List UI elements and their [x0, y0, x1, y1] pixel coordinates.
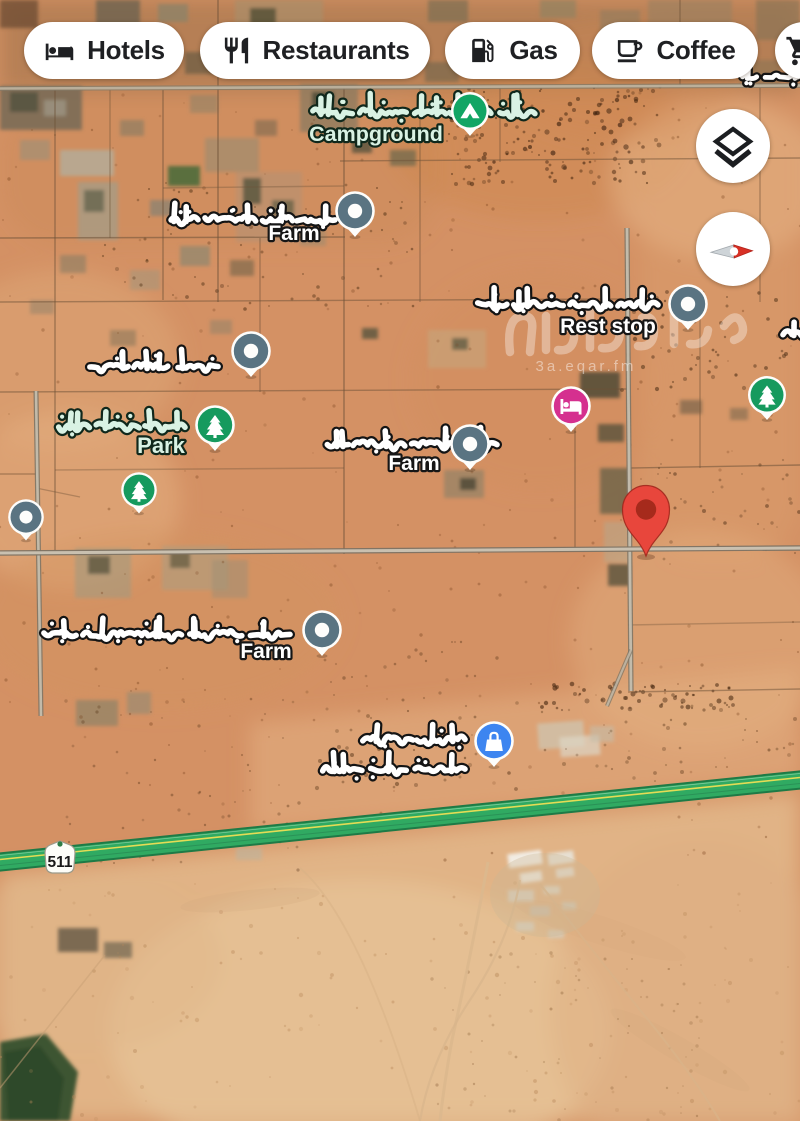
svg-text:Campground: Campground: [309, 122, 443, 146]
svg-text:Park: Park: [137, 433, 185, 458]
svg-text:Farm: Farm: [240, 640, 291, 663]
svg-text:3a.eqar.fm: 3a.eqar.fm: [536, 358, 637, 375]
svg-text:Farm: Farm: [268, 222, 319, 245]
svg-text:Farm: Farm: [388, 452, 439, 475]
svg-text:511: 511: [47, 854, 72, 871]
svg-text:Rest stop: Rest stop: [560, 315, 656, 338]
